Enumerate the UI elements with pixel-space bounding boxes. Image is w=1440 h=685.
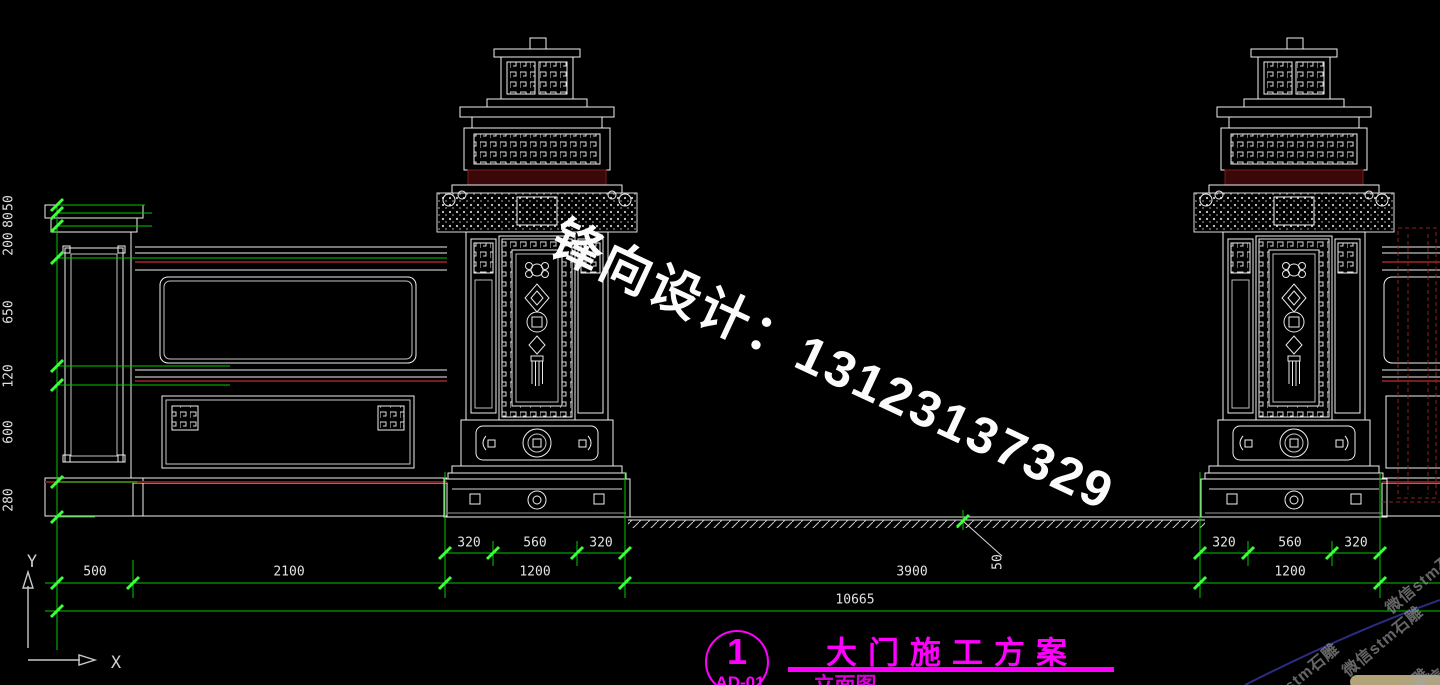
y-axis-label: Y: [27, 552, 37, 572]
dim-label: 320: [457, 537, 480, 550]
ground-drop-label: 50: [992, 554, 1005, 570]
dim-label: 320: [1344, 537, 1367, 550]
vertical-dim-label: 200: [3, 232, 16, 255]
ground-hatch: [628, 517, 1205, 528]
x-axis-label: X: [111, 653, 121, 673]
dim-label: 320: [1212, 537, 1235, 550]
vertical-dim-label: 120: [3, 364, 16, 387]
hidden-wall-dashed: [1382, 228, 1440, 502]
dim-label: 560: [1278, 537, 1301, 550]
right-gate-pillar: [1194, 38, 1394, 517]
drawing-code: AD-01: [715, 673, 764, 685]
vertical-dim-label: 600: [3, 420, 16, 443]
cad-canvas: 50 80 200 650 120 600 280 320 560 320 32…: [0, 0, 1440, 685]
vertical-dim-label: 50: [3, 195, 16, 211]
dim-label: 3900: [896, 566, 927, 579]
vertical-dim-label: 80: [3, 212, 16, 228]
dim-label: 560: [523, 537, 546, 550]
vertical-dim-label: 650: [3, 300, 16, 323]
left-wall-section: [45, 205, 447, 516]
vertical-dim-label: 280: [3, 488, 16, 511]
dim-label: 1200: [1274, 566, 1305, 579]
dim-label: 1200: [519, 566, 550, 579]
detail-number: 1: [727, 631, 747, 673]
drawing-subtitle: 立面图: [814, 669, 877, 685]
drawing-title: 大门施工方案: [826, 628, 1078, 673]
dim-label: 320: [589, 537, 612, 550]
total-dim-label: 10665: [835, 594, 874, 607]
axis-icon: [23, 572, 95, 665]
dim-label: 2100: [273, 566, 304, 579]
dim-label: 500: [83, 566, 106, 579]
